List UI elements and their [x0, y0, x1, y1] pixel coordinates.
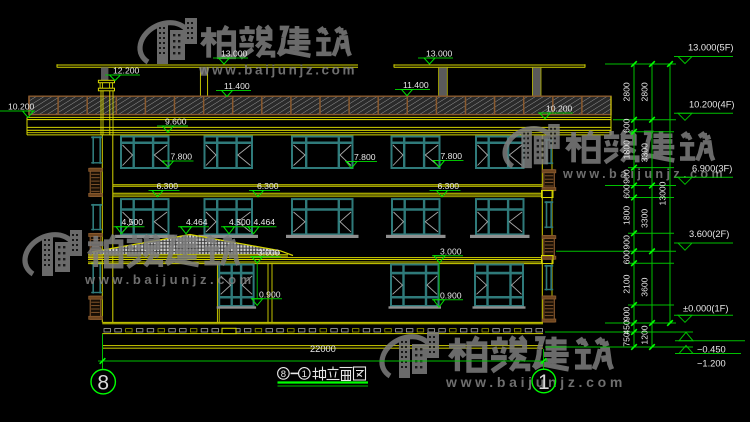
svg-text:4.464: 4.464	[186, 217, 208, 227]
svg-text:13.000: 13.000	[221, 49, 248, 59]
svg-text:10.200: 10.200	[8, 102, 35, 112]
svg-text:13.000: 13.000	[426, 49, 453, 59]
svg-text:2800: 2800	[622, 82, 632, 101]
svg-text:−1.200: −1.200	[697, 359, 726, 369]
svg-text:600: 600	[622, 184, 632, 199]
svg-text:4.464: 4.464	[254, 217, 276, 227]
svg-text:www.baijunjz.com: www.baijunjz.com	[445, 374, 626, 390]
svg-text:0.900: 0.900	[259, 289, 281, 299]
svg-text:1800: 1800	[622, 206, 632, 225]
svg-text:10.200: 10.200	[546, 104, 573, 114]
svg-text:13000: 13000	[658, 181, 668, 205]
svg-text:11.400: 11.400	[224, 81, 250, 91]
svg-text:0.900: 0.900	[440, 290, 462, 300]
svg-text:www.baijunjz.com: www.baijunjz.com	[84, 272, 255, 287]
svg-text:4.500: 4.500	[229, 217, 251, 227]
svg-text:7.800: 7.800	[171, 152, 193, 162]
svg-text:3300: 3300	[640, 143, 650, 162]
svg-text:750: 750	[622, 332, 632, 347]
svg-text:10.200(4F): 10.200(4F)	[689, 100, 734, 110]
svg-text:±0.000(1F): ±0.000(1F)	[683, 304, 728, 314]
svg-text:11.400: 11.400	[403, 80, 429, 90]
svg-text:2100: 2100	[622, 274, 632, 293]
svg-text:3.000: 3.000	[440, 246, 462, 256]
svg-text:2800: 2800	[640, 82, 650, 101]
svg-text:7.800: 7.800	[441, 151, 463, 161]
svg-text:4.500: 4.500	[122, 217, 144, 227]
svg-text:900: 900	[622, 307, 632, 322]
svg-text:9.600: 9.600	[165, 117, 187, 127]
svg-text:8: 8	[97, 372, 109, 395]
svg-text:900: 900	[622, 235, 632, 250]
svg-text:www.baijunjz.com: www.baijunjz.com	[198, 63, 357, 78]
svg-text:1: 1	[538, 371, 550, 394]
svg-text:3.000: 3.000	[258, 247, 280, 257]
svg-text:3.600(2F): 3.600(2F)	[689, 229, 729, 239]
svg-text:6.300: 6.300	[257, 181, 279, 191]
svg-text:1800: 1800	[622, 140, 632, 159]
svg-text:3600: 3600	[640, 277, 650, 296]
svg-text:13.000(5F): 13.000(5F)	[688, 43, 733, 53]
svg-text:12.200: 12.200	[113, 66, 140, 76]
svg-text:1200: 1200	[640, 325, 650, 344]
svg-text:600: 600	[622, 118, 632, 133]
svg-text:900: 900	[622, 169, 632, 184]
svg-text:600: 600	[622, 250, 632, 265]
svg-text:1: 1	[302, 369, 307, 380]
svg-text:6.900(3F): 6.900(3F)	[692, 164, 732, 174]
svg-text:6.300: 6.300	[438, 181, 460, 191]
svg-text:8: 8	[281, 369, 286, 380]
svg-text:22000: 22000	[310, 344, 336, 354]
svg-text:3300: 3300	[640, 209, 650, 228]
svg-text:7.800: 7.800	[354, 152, 376, 162]
svg-text:6.300: 6.300	[157, 181, 179, 191]
